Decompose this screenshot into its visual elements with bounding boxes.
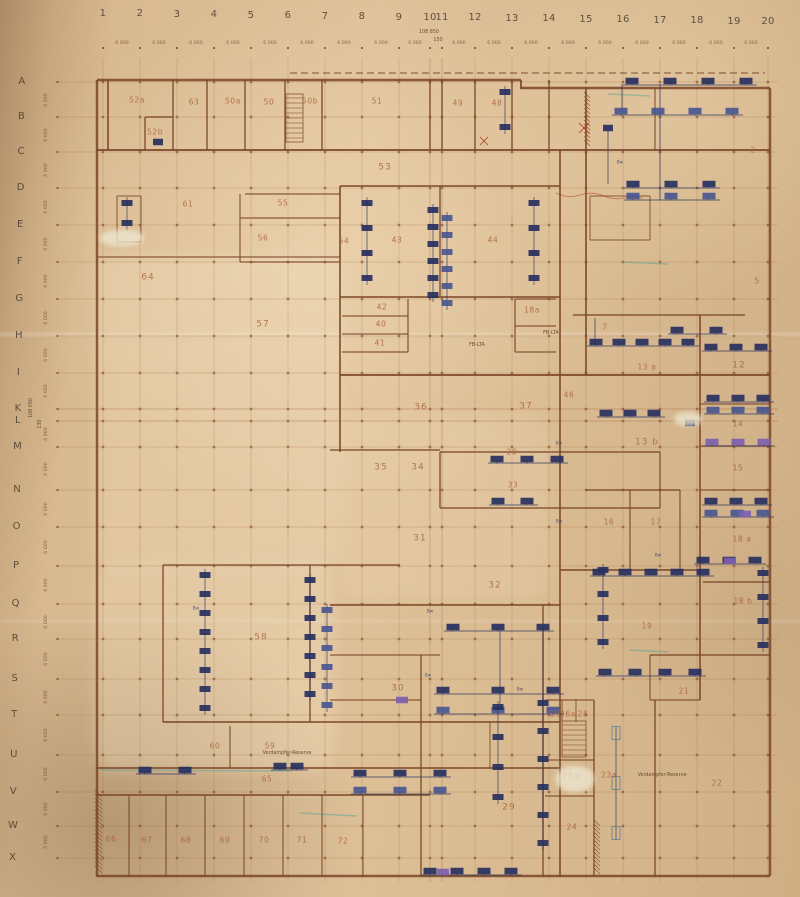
dimension-label: 6 000	[598, 41, 611, 46]
dimension-label: 6 000	[408, 41, 421, 46]
grid-column-label: 9	[396, 13, 403, 23]
room-label: 35	[374, 464, 387, 473]
dimension-label: 6 000	[44, 835, 49, 848]
dimension-label: 6 000	[44, 615, 49, 628]
room-label: 50	[264, 98, 275, 106]
joint-dimension-label: 150	[433, 38, 442, 43]
grid-row-label: G	[15, 294, 23, 304]
dimension-label: 6 000	[561, 41, 574, 46]
grid-column-label: 7	[322, 12, 329, 22]
dimension-label: 6 000	[44, 578, 49, 591]
dimension-label: 6 000	[337, 41, 350, 46]
grid-row-label: W	[8, 821, 18, 831]
dimension-label: 6 000	[44, 274, 49, 287]
correction-patch	[100, 230, 144, 246]
plan-sheet: 108 850 150 108 050 130 1234567891011121…	[0, 0, 800, 897]
room-label: 52b	[147, 128, 163, 136]
grid-row-label: U	[10, 750, 18, 760]
grid-row-label: M	[13, 442, 22, 452]
dimension-label: 6 000	[44, 652, 49, 665]
dimension-label: 6 000	[152, 41, 165, 46]
bw-marker-label: Bw	[617, 161, 623, 165]
grid-column-label: 20	[761, 17, 774, 27]
grid-column-label: 10	[423, 13, 436, 23]
dimension-label: 6 000	[44, 163, 49, 176]
grid-row-label: E	[17, 220, 24, 230]
joint-dimension-label: 130	[38, 419, 43, 428]
grid-column-label: 3	[174, 10, 181, 20]
dimension-label: 6 000	[374, 41, 387, 46]
room-label: 42	[377, 303, 388, 311]
room-label: 67	[142, 836, 153, 844]
grid-column-label: 12	[468, 13, 481, 23]
grid-column-label: 8	[359, 12, 366, 22]
room-label: 48	[492, 99, 503, 107]
dimension-label: 6 000	[263, 41, 276, 46]
room-label: 23a	[601, 771, 617, 779]
grid-column-label: 17	[653, 16, 666, 26]
bw-marker-label: Bw	[556, 442, 562, 446]
room-label: 20	[507, 448, 518, 456]
room-label: 18 a	[733, 535, 752, 543]
room-label: 12	[732, 362, 745, 371]
grid-row-label: S	[12, 674, 19, 684]
grid-row-label: K	[15, 404, 22, 414]
room-label: 21	[679, 687, 690, 695]
room-label: 17	[651, 518, 662, 526]
room-label: 50a	[225, 97, 241, 105]
room-label: 49	[453, 99, 464, 107]
annotation-label: FB-LTA	[469, 343, 485, 348]
grid-column-label: 14	[542, 14, 555, 24]
dimension-label: 6 000	[44, 348, 49, 361]
bw-marker-label: Bw	[655, 554, 661, 558]
room-label: 41	[375, 339, 386, 347]
room-label: 31	[413, 535, 426, 544]
room-label: 18a	[524, 306, 540, 314]
grid-column-label: 19	[727, 17, 740, 27]
dimension-label: 6 000	[44, 802, 49, 815]
bw-marker-label: Bw	[193, 607, 199, 611]
dimension-label: 6 000	[44, 237, 49, 250]
room-label: 53	[378, 164, 391, 173]
dimension-label: 6 000	[487, 41, 500, 46]
room-label: 14	[733, 420, 744, 428]
room-label: 72	[338, 837, 349, 845]
dimension-label: 6 000	[115, 41, 128, 46]
room-label: 54	[339, 237, 350, 245]
room-label: 28	[578, 710, 589, 718]
grid-row-label: H	[15, 331, 23, 341]
grid-column-label: 18	[690, 16, 703, 26]
room-label: 50b	[302, 97, 318, 105]
correction-patch	[556, 766, 594, 792]
room-label: 52a	[129, 96, 145, 104]
total-dimension-label: 108 850	[419, 30, 439, 35]
grid-row-label: I	[17, 368, 20, 378]
dimension-label: 6 000	[44, 540, 49, 553]
dimension-label: 6 000	[44, 93, 49, 106]
room-label: 51	[372, 97, 383, 105]
dimension-label: 6 000	[635, 41, 648, 46]
dimension-label: 6 000	[709, 41, 722, 46]
room-label: 7	[602, 323, 607, 331]
room-label: 59	[265, 742, 276, 750]
room-label: 13 b	[635, 439, 659, 448]
room-label: 61	[183, 200, 194, 208]
dimension-label: 6 000	[189, 41, 202, 46]
room-label: 63	[189, 98, 200, 106]
labels-layer: 108 850 150 108 050 130 1234567891011121…	[0, 0, 800, 897]
grid-row-label: B	[18, 112, 25, 122]
room-label: 57	[256, 321, 269, 330]
room-label: 2	[750, 146, 755, 154]
grid-row-label: D	[17, 183, 25, 193]
grid-row-label: P	[13, 561, 19, 571]
room-label: 13 a	[638, 363, 657, 371]
room-label: 29	[502, 804, 515, 813]
dimension-label: 6 000	[44, 502, 49, 515]
grid-column-label: 2	[137, 9, 144, 19]
room-label: 30	[391, 685, 404, 694]
dimension-label: 6 000	[300, 41, 313, 46]
dimension-label: 6 000	[744, 41, 757, 46]
room-label: 71	[297, 836, 308, 844]
annotation-label: FB-LTA	[543, 331, 559, 336]
dimension-label: 6 000	[44, 427, 49, 440]
dimension-label: 6 000	[524, 41, 537, 46]
room-label: 19	[642, 622, 653, 630]
grid-column-label: 16	[616, 15, 629, 25]
room-label: 70	[259, 836, 270, 844]
grid-column-label: 6	[285, 11, 292, 21]
room-label: 44	[488, 236, 499, 244]
room-label: 5	[754, 277, 759, 285]
grid-row-label: X	[9, 853, 16, 863]
dimension-label: 6 000	[44, 462, 49, 475]
room-label: 34	[411, 464, 424, 473]
total-dimension-label: 108 050	[29, 398, 34, 418]
room-label: 32	[488, 582, 501, 591]
bw-marker-label: Bw	[556, 520, 562, 524]
room-label: 55	[278, 199, 289, 207]
grid-column-label: 5	[248, 11, 255, 21]
room-label: 24	[567, 823, 578, 831]
grid-row-label: N	[13, 485, 21, 495]
room-label: 56	[258, 234, 269, 242]
dimension-label: 6 000	[44, 690, 49, 703]
grid-row-label: R	[12, 634, 19, 644]
room-label: 69	[220, 836, 231, 844]
room-label: 40	[376, 320, 387, 328]
room-label: 22	[712, 779, 723, 787]
grid-column-label: 11	[435, 13, 448, 23]
room-label: 25	[551, 710, 562, 718]
room-label: 58	[254, 634, 267, 643]
room-label: 46	[564, 391, 575, 399]
grid-row-label: A	[18, 77, 25, 87]
dimension-label: 6 000	[44, 128, 49, 141]
bw-marker-label: Bw	[425, 674, 431, 678]
correction-patch	[674, 412, 702, 426]
dimension-label: 6 000	[44, 384, 49, 397]
grid-column-label: 15	[579, 15, 592, 25]
dimension-label: 6 000	[226, 41, 239, 46]
room-label: 15	[733, 464, 744, 472]
room-label: 33	[508, 481, 519, 489]
bw-marker-label: Bw	[427, 610, 433, 614]
room-label: 26a	[560, 710, 576, 718]
grid-column-label: 1	[100, 9, 107, 19]
room-label: 16	[604, 518, 615, 526]
dimension-label: 6 000	[44, 200, 49, 213]
grid-column-label: 13	[505, 14, 518, 24]
dimension-label: 6 000	[452, 41, 465, 46]
room-label: 43	[392, 236, 403, 244]
room-label: 68	[181, 836, 192, 844]
grid-row-label: O	[13, 522, 21, 532]
annotation-label: Verdampfer-Reserve	[263, 751, 312, 756]
grid-row-label: T	[11, 710, 17, 720]
grid-row-label: V	[10, 787, 17, 797]
grid-row-label: L	[15, 416, 21, 426]
room-label: 66	[106, 835, 117, 843]
annotation-label: Verdampfer-Reserve	[638, 773, 687, 778]
grid-row-label: F	[17, 257, 23, 267]
room-label: 60	[210, 742, 221, 750]
room-label: 64	[141, 274, 154, 283]
dimension-label: 6 000	[44, 728, 49, 741]
grid-row-label: Q	[12, 599, 20, 609]
dimension-label: 6 000	[44, 311, 49, 324]
room-label: 65	[262, 775, 273, 783]
grid-column-label: 4	[211, 10, 218, 20]
bw-marker-label: Bw	[517, 688, 523, 692]
grid-row-label: C	[18, 147, 25, 157]
room-label: 18 b	[733, 597, 752, 605]
dimension-label: 6 000	[44, 767, 49, 780]
room-label: 37	[519, 403, 532, 412]
room-label: 36	[414, 404, 427, 413]
dimension-label: 6 000	[672, 41, 685, 46]
